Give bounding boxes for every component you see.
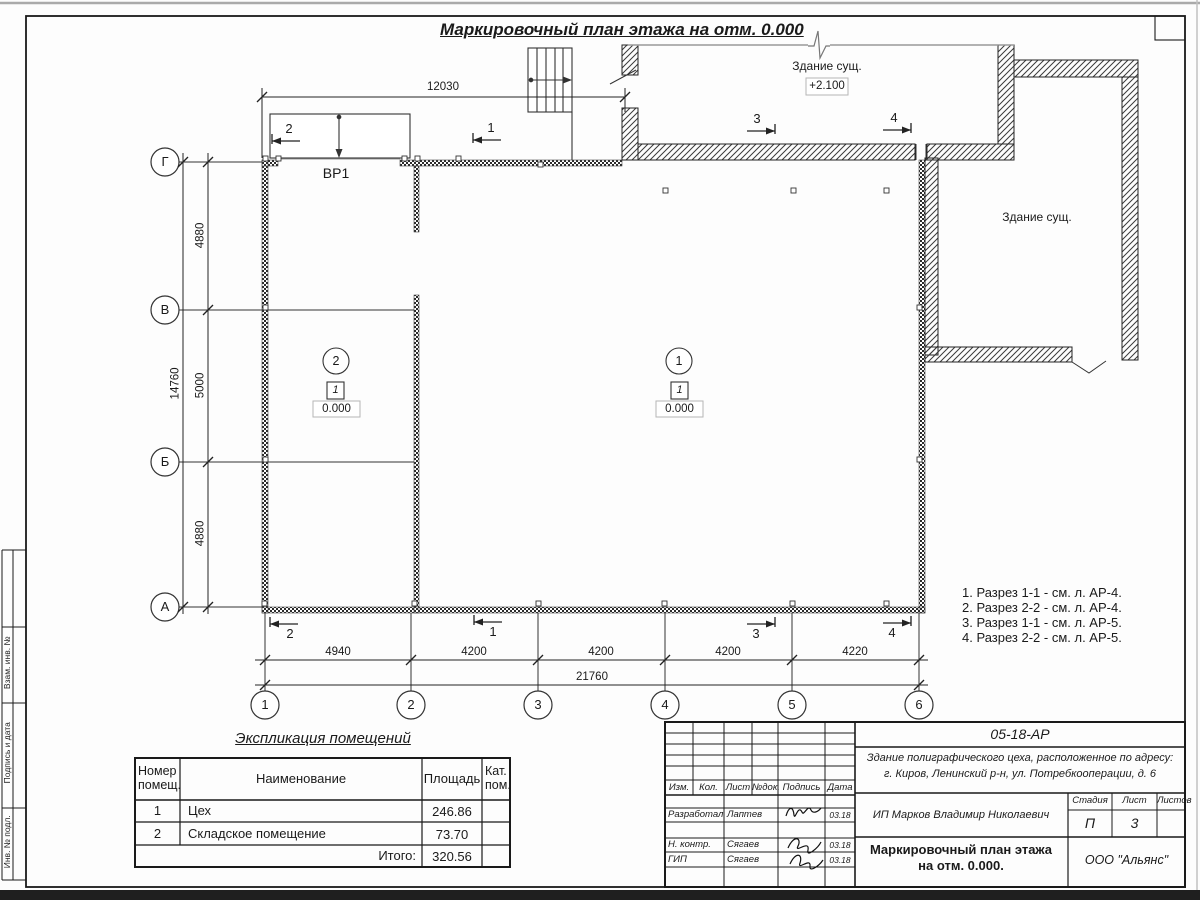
stamp-name-developer: Лаптев: [727, 810, 762, 821]
stamp-sheet-title-line1: Маркировочный план этажа: [858, 843, 1064, 858]
gate-vr1-label: ВР1: [306, 166, 366, 182]
schedule-header-name: Наименование: [182, 772, 420, 787]
note-4: 4. Разрез 2-2 - см. л. АР-5.: [962, 631, 1122, 646]
stamp-object-line2: г. Киров, Ленинский р-н, ул. Потребкоопе…: [858, 768, 1182, 780]
stamp-role-ncontrol: Н. контр.: [668, 840, 711, 851]
margin-label-inv: Инв. № подл.: [3, 806, 13, 878]
axis-row-g: Г: [151, 155, 179, 170]
section-mark-1-bottom: 1: [483, 625, 503, 640]
dim-bottom-1: 4200: [434, 646, 514, 659]
room-2-elevation: 0.000: [313, 403, 360, 416]
axis-col-2: 2: [397, 698, 425, 713]
schedule-row2-name: Складское помещение: [188, 827, 326, 842]
axis-col-5: 5: [778, 698, 806, 713]
schedule-row1-number: 1: [135, 804, 180, 819]
schedule-row2-area: 73.70: [423, 828, 481, 843]
axis-row-b: Б: [151, 455, 179, 470]
stamp-col-kol: Кол.: [693, 783, 724, 794]
dim-bottom-0: 4940: [298, 646, 378, 659]
section-mark-2-bottom: 2: [280, 627, 300, 642]
stamp-name-ncontrol: Сягаев: [727, 840, 759, 851]
schedule-header-area: Площадь: [423, 772, 481, 787]
section-arrows: [270, 123, 911, 628]
section-mark-4-top: 4: [884, 111, 904, 126]
section-mark-2-top: 2: [279, 122, 299, 137]
axis-col-6: 6: [905, 698, 933, 713]
stamp-client: ИП Марков Владимир Николаевич: [858, 809, 1064, 821]
stamp-role-developer: Разработал: [668, 810, 723, 821]
note-3: 3. Разрез 1-1 - см. л. АР-5.: [962, 616, 1122, 631]
existing-building-walls: [622, 45, 1138, 362]
drawing-linework: [0, 0, 1200, 900]
room-1-number: 1: [665, 354, 693, 368]
axis-col-1: 1: [251, 698, 279, 713]
stamp-col-data: Дата: [825, 783, 855, 794]
axis-col-3: 3: [524, 698, 552, 713]
schedule-total-label: Итого:: [280, 849, 416, 864]
axis-col-4: 4: [651, 698, 679, 713]
axis-row-v: В: [151, 303, 179, 318]
schedule-total-value: 320.56: [423, 850, 481, 865]
stamp-date-developer: 03.18: [825, 811, 855, 821]
stamp-stage-label: Стадия: [1068, 796, 1112, 807]
section-mark-3-bottom: 3: [746, 627, 766, 642]
dimension-lines: [178, 88, 928, 690]
room-2-number: 2: [322, 354, 350, 368]
margin-label-podpis: Подпись и дата: [3, 701, 13, 805]
note-1: 1. Разрез 1-1 - см. л. АР-4.: [962, 586, 1122, 601]
stamp-name-gip: Сягаев: [727, 855, 759, 866]
stamp-sheet-label: Лист: [1112, 796, 1157, 807]
stamp-col-ndok: №док.: [752, 783, 778, 794]
section-mark-3-top: 3: [747, 112, 767, 127]
schedule-row1-name: Цех: [188, 804, 211, 819]
stamp-col-list: Лист: [724, 783, 752, 794]
schedule-title: Экспликация помещений: [223, 731, 423, 748]
room-2-mark: 1: [327, 384, 344, 396]
stamp-object-line1: Здание полиграфического цеха, расположен…: [858, 752, 1182, 764]
schedule-header-number: Номер помещ.: [138, 764, 180, 792]
dim-left-1: 5000: [195, 355, 208, 415]
stamp-sheet-value: 3: [1112, 816, 1157, 832]
dim-bottom-total: 21760: [552, 671, 632, 684]
schedule-header-cat: Кат. пом.: [485, 764, 511, 792]
dim-bottom-4: 4220: [815, 646, 895, 659]
dim-left-0: 4880: [195, 205, 208, 265]
dim-left-2: 4880: [195, 503, 208, 563]
dim-top: 12030: [403, 81, 483, 94]
stamp-date-gip: 03.18: [825, 856, 855, 866]
margin-label-vzam: Взам. инв. №: [3, 625, 13, 701]
stamp-doc-number: 05-18-АР: [855, 727, 1185, 743]
room-1-mark: 1: [671, 384, 688, 396]
stamp-col-podpis: Подпись: [778, 783, 825, 794]
existing-top-elevation: +2.100: [806, 80, 848, 93]
drawing-sheet: Маркировочный план этажа на отм. 0.000 1…: [0, 0, 1200, 900]
sheet-title: Маркировочный план этажа на отм. 0.000: [440, 20, 780, 39]
axis-row-a: А: [151, 600, 179, 615]
existing-top-label: Здание сущ.: [769, 60, 885, 73]
stamp-role-gip: ГИП: [668, 855, 687, 866]
section-mark-4-bottom: 4: [882, 626, 902, 641]
schedule-row1-area: 246.86: [423, 805, 481, 820]
stamp-sheet-title-line2: на отм. 0.000.: [858, 859, 1064, 874]
stairs: [528, 48, 572, 160]
stamp-date-ncontrol: 03.18: [825, 841, 855, 851]
main-building-walls: [262, 160, 925, 613]
schedule-row2-number: 2: [135, 827, 180, 842]
stamp-stage-value: П: [1068, 816, 1112, 832]
dim-bottom-2: 4200: [561, 646, 641, 659]
stamp-col-izm: Изм.: [665, 783, 693, 794]
dim-bottom-3: 4200: [688, 646, 768, 659]
section-mark-1-top: 1: [481, 121, 501, 136]
existing-right-label: Здание сущ.: [980, 211, 1094, 224]
stamp-company: ООО "Альянс": [1068, 853, 1185, 867]
column-markers: [262, 156, 922, 606]
room-1-elevation: 0.000: [656, 403, 703, 416]
dim-left-total: 14760: [170, 353, 183, 413]
note-2: 2. Разрез 2-2 - см. л. АР-4.: [962, 601, 1122, 616]
stamp-sheets-label: Листов: [1157, 796, 1185, 807]
